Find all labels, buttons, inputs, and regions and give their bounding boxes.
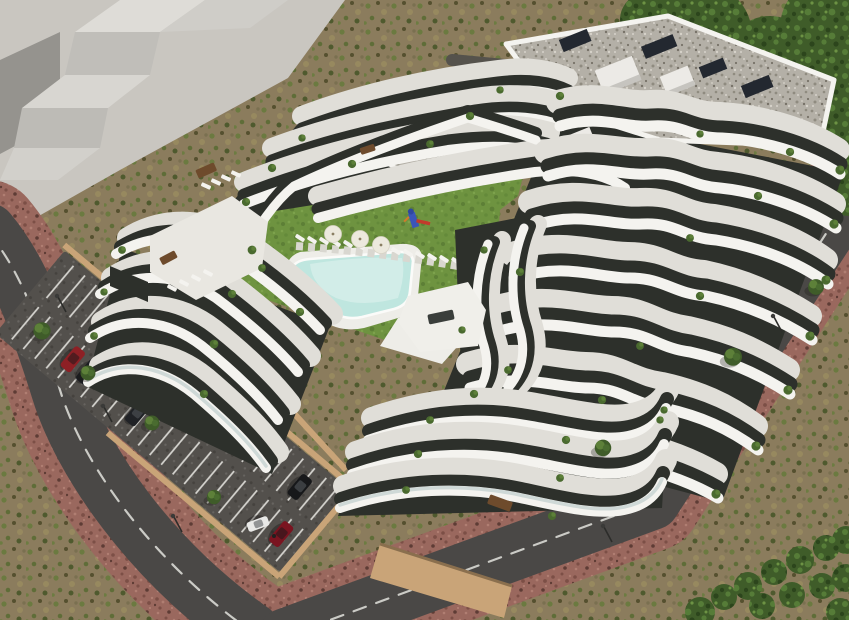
pedestrian bbox=[272, 534, 276, 538]
aerial-render bbox=[0, 0, 849, 620]
render-viewport bbox=[0, 0, 849, 620]
neighbor-step-face bbox=[65, 32, 160, 75]
neighbor-step-face bbox=[14, 108, 108, 148]
